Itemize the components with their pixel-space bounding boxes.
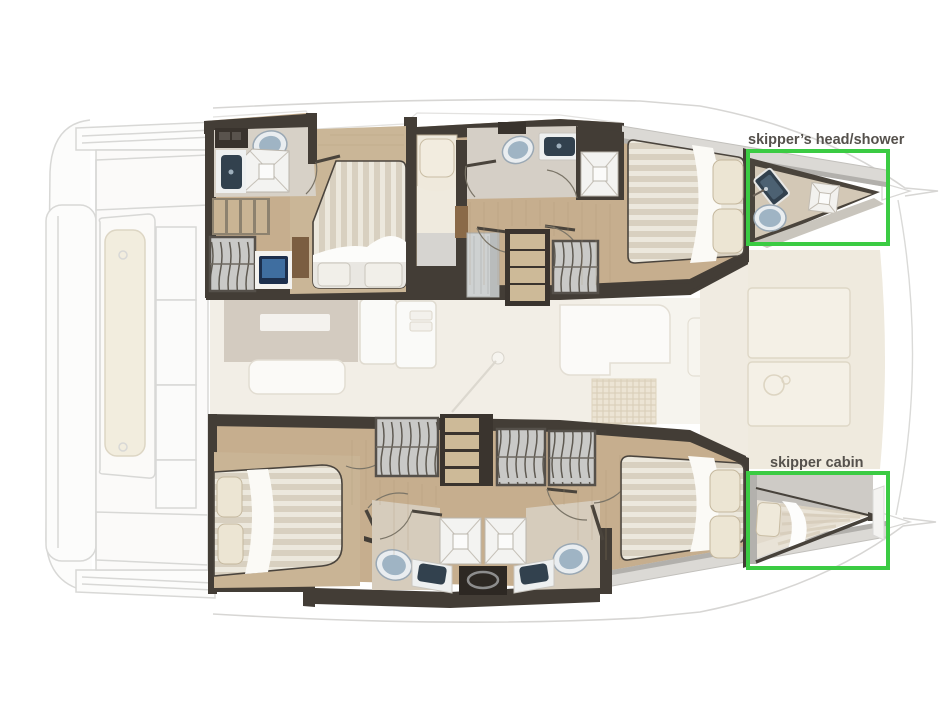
svg-text:skipper cabin: skipper cabin [770,455,863,471]
svg-text:skipper’s head/shower: skipper’s head/shower [748,132,905,148]
